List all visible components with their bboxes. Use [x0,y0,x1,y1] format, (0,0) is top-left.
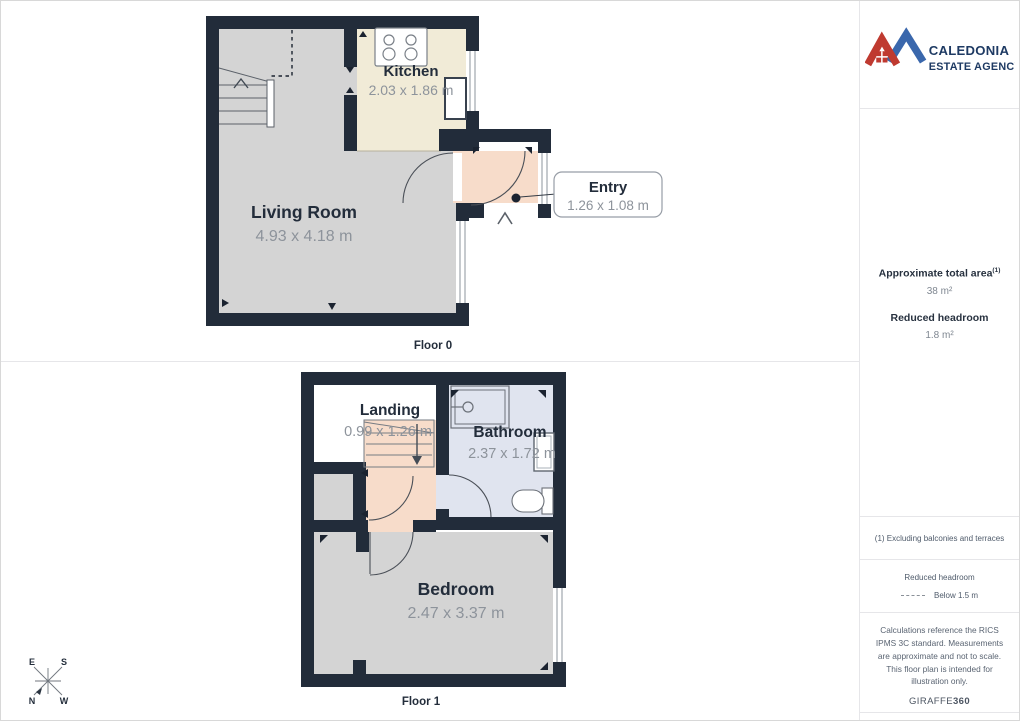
bedroom-dims: 2.47 x 3.37 m [408,605,505,622]
compass-icon: E S N W [15,647,79,711]
front-door [538,153,551,204]
landing-dims: 0.99 x 1.26 m [344,424,432,440]
logo-window-icon [876,51,887,62]
reduced-headroom-label: Reduced headroom [860,312,1019,324]
floor0-section: Entry 1.26 x 1.08 m Kitchen 2.03 x 1.86 … [1,1,860,362]
entrance-arrow-icon [498,213,512,224]
total-area-value: 38 m² [860,286,1019,297]
kitchen-dims: 2.03 x 1.86 m [369,82,454,98]
giraffe360-brand: GIRAFFE360 [873,696,1006,707]
floor0-room-fills [219,29,538,313]
disclaimer-block: Calculations reference the RICS IPMS 3C … [860,613,1019,713]
entry-floor [453,151,538,203]
total-area-label: Approximate total area(1) [860,267,1019,280]
logo-line2: ESTATE AGENCY [928,61,1014,73]
floor1-plan: Landing 0.99 x 1.26 m Bathroom 2.37 x 1.… [1,362,860,720]
bedroom-window [553,588,566,662]
area-summary: Approximate total area(1) 38 m² Reduced … [860,267,1019,341]
bedroom-floor [314,532,553,674]
stove-icon [375,28,427,66]
living-room-dims: 4.93 x 4.18 m [256,228,353,245]
legend-item: Below 1.5 m [860,591,1019,600]
compass-north-arrow [36,688,42,695]
floor0-label: Floor 0 [383,340,483,352]
info-sidebar: CALEDONIA ESTATE AGENCY Approximate tota… [859,1,1019,720]
kitchen-name: Kitchen [383,63,438,80]
reduced-headroom-value: 1.8 m² [860,330,1019,341]
entry-dims: 1.26 x 1.08 m [567,198,649,213]
landing-name: Landing [360,402,420,419]
agency-logo: CALEDONIA ESTATE AGENCY [860,1,1019,109]
living-room-name: Living Room [251,202,357,222]
entry-callout: Entry 1.26 x 1.08 m [554,172,662,217]
floor1-section: Landing 0.99 x 1.26 m Bathroom 2.37 x 1.… [1,362,860,720]
floor1-label: Floor 1 [371,696,471,708]
closet-floor [314,474,353,520]
bedroom-name: Bedroom [418,579,495,599]
compass-east-label: E [29,657,35,667]
entry-point-dot [512,194,521,203]
compass-west-label: W [60,696,69,706]
floorplans: Entry 1.26 x 1.08 m Kitchen 2.03 x 1.86 … [1,1,860,720]
reduced-headroom-legend: Reduced headroom Below 1.5 m [860,560,1019,613]
entry-name: Entry [589,179,628,196]
kitchen-window [466,51,479,111]
living-entry-doorway [453,153,462,201]
floor0-plan: Entry 1.26 x 1.08 m Kitchen 2.03 x 1.86 … [1,1,860,361]
footnote: (1) Excluding balconies and terraces [860,516,1019,560]
floorplan-page: Entry 1.26 x 1.08 m Kitchen 2.03 x 1.86 … [0,0,1020,721]
compass-south-label: S [61,657,67,667]
disclaimer-text: Calculations reference the RICS IPMS 3C … [873,624,1006,688]
logo-line1: CALEDONIA [928,43,1009,58]
bathroom-dims: 2.37 x 1.72 m [468,446,556,462]
dashed-line-icon [901,595,925,596]
living-room-window [456,221,469,303]
legend-title: Reduced headroom [860,573,1019,582]
compass-north-label: N [29,696,36,706]
toilet-icon [512,488,553,514]
bathroom-name: Bathroom [473,424,546,441]
footnote-marker: (1) [992,267,1000,274]
